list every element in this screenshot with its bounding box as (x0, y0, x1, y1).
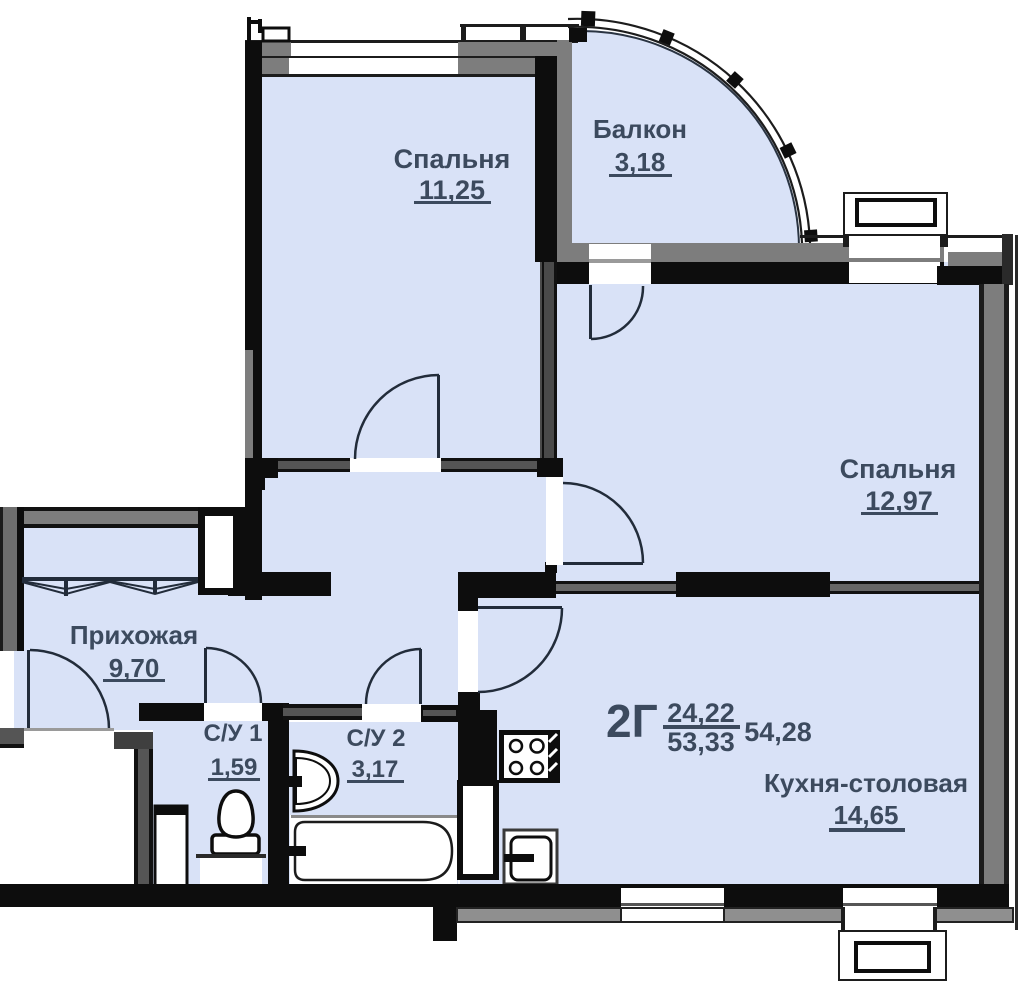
svg-text:С/У 2: С/У 2 (347, 725, 406, 752)
svg-text:Прихожая: Прихожая (70, 620, 198, 650)
svg-text:Спальня: Спальня (394, 144, 511, 174)
svg-text:14,65: 14,65 (833, 800, 898, 830)
svg-text:Спальня: Спальня (840, 454, 957, 484)
svg-text:2Г: 2Г (606, 695, 658, 747)
svg-text:С/У 1: С/У 1 (204, 720, 263, 747)
svg-text:3,18: 3,18 (615, 147, 666, 177)
svg-text:53,33: 53,33 (667, 727, 735, 757)
svg-text:9,70: 9,70 (109, 653, 160, 683)
svg-text:3,17: 3,17 (352, 756, 399, 783)
svg-text:1,59: 1,59 (211, 754, 258, 781)
svg-text:54,28: 54,28 (744, 717, 812, 747)
svg-text:24,22: 24,22 (667, 698, 735, 728)
svg-text:Кухня-столовая: Кухня-столовая (764, 768, 968, 798)
svg-text:Балкон: Балкон (593, 114, 687, 144)
svg-text:11,25: 11,25 (419, 175, 485, 205)
svg-text:12,97: 12,97 (865, 486, 933, 516)
